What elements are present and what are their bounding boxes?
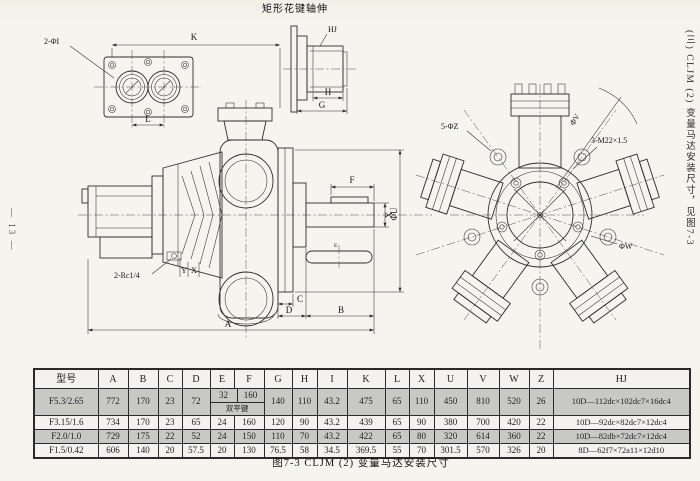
table-cell: 10D—82db×72dc7×12dc4 xyxy=(553,430,690,444)
model-cell: F2.0/1.0 xyxy=(34,430,98,444)
dim-table-body: F5.3/2.65772170237232160双平键14011043.2475… xyxy=(34,389,690,459)
table-cell: 52 xyxy=(182,430,210,444)
table-header-cell: B xyxy=(128,369,158,389)
table-cell: 772 xyxy=(98,389,128,416)
table-cell: 65 xyxy=(182,416,210,430)
dim-label-C: C xyxy=(297,294,303,304)
table-cell: 110 xyxy=(292,389,317,416)
dim-label-X-drain: X xyxy=(191,266,197,275)
dim-label-phiW: ΦW xyxy=(619,242,633,251)
table-cell: 700 xyxy=(467,416,499,430)
table-cell: 10D—112dc×102dc7×16dc4 xyxy=(553,389,690,416)
model-cell: F3.15/1.6 xyxy=(34,416,98,430)
table-header-cell: F xyxy=(234,369,264,389)
table-cell: 175 xyxy=(128,430,158,444)
thread-ports-callout: 3-M22×1.5 xyxy=(591,136,627,145)
table-cell: 614 xyxy=(467,430,499,444)
table-header-cell: D xyxy=(182,369,210,389)
table-cell: 22 xyxy=(529,430,553,444)
dim-label-E: E xyxy=(334,243,338,249)
table-cell: 90 xyxy=(409,416,434,430)
dim-label-G: G xyxy=(319,100,326,110)
table-cell: 110 xyxy=(409,389,434,416)
dim-label-H: H xyxy=(325,87,332,97)
table-header-cell: H xyxy=(292,369,317,389)
cylinder-lower-left xyxy=(447,235,536,328)
table-cell: 43.2 xyxy=(317,389,347,416)
table-header-cell: A xyxy=(98,369,128,389)
key-spec-cell: 32160双平键 xyxy=(210,389,264,416)
table-cell: 10D—92dc×82dc7×12dc4 xyxy=(553,416,690,430)
table-cell: 729 xyxy=(98,430,128,444)
table-header-cell: Z xyxy=(529,369,553,389)
table-header-cell: G xyxy=(264,369,292,389)
table-header-cell: X xyxy=(409,369,434,389)
table-cell: 150 xyxy=(234,430,264,444)
table-row: F3.15/1.67341702365241601209043.24396590… xyxy=(34,416,690,430)
table-cell: 70 xyxy=(292,430,317,444)
table-cell: 170 xyxy=(128,416,158,430)
dim-label-B: B xyxy=(338,305,344,315)
five-holes-callout: 5-ΦZ xyxy=(441,122,459,131)
dim-label-D: D xyxy=(286,305,293,315)
table-cell: 24 xyxy=(210,430,234,444)
figure-caption: 图7-3 CLJM (2) 变量马达安装尺寸 xyxy=(33,455,689,470)
table-cell: 72 xyxy=(182,389,210,416)
motor-side-view: E 2-Rc1/4 Y X F X ΦU xyxy=(78,100,432,340)
ports-callout: 2-ΦI xyxy=(44,37,60,46)
table-header-cell: L xyxy=(385,369,409,389)
table-header-cell: W xyxy=(499,369,529,389)
dim-label-K: K xyxy=(191,32,198,42)
table-header-cell: E xyxy=(210,369,234,389)
table-header-cell: HJ xyxy=(553,369,690,389)
table-cell: 24 xyxy=(210,416,234,430)
dim-label-A: A xyxy=(225,319,232,329)
engineering-drawing: L 2-ΦI K 矩形花键轴伸 HJ H xyxy=(0,0,700,364)
table-cell: 475 xyxy=(347,389,385,416)
table-header-cell: V xyxy=(467,369,499,389)
table-cell: 320 xyxy=(434,430,467,444)
table-header-cell: C xyxy=(158,369,182,389)
dim-label-Y: Y xyxy=(181,266,187,275)
dim-label-F: F xyxy=(349,175,354,185)
dim-table-header-row: 型号ABCDEFGHIKLXUVWZHJ xyxy=(34,369,690,389)
table-cell: 43.2 xyxy=(317,430,347,444)
table-cell: 43.2 xyxy=(317,416,347,430)
table-header-cell: I xyxy=(317,369,347,389)
table-cell: 22 xyxy=(529,416,553,430)
drain-callout: 2-Rc1/4 xyxy=(114,271,140,280)
table-cell: 90 xyxy=(292,416,317,430)
table-cell: 420 xyxy=(499,416,529,430)
table-cell: 80 xyxy=(409,430,434,444)
dim-label-L: L xyxy=(145,114,151,124)
spline-view-title: 矩形花键轴伸 xyxy=(262,2,328,15)
table-cell: 65 xyxy=(385,389,409,416)
table-cell: 23 xyxy=(158,389,182,416)
table-cell: 26 xyxy=(529,389,553,416)
table-cell: 360 xyxy=(499,430,529,444)
scanned-catalog-page: — 13 — (三) CLJM (2) 变量马达安装尺寸，见图7-3 xyxy=(0,0,700,481)
table-row: F2.0/1.07291752252241501107043.242265803… xyxy=(34,430,690,444)
table-cell: 170 xyxy=(128,389,158,416)
dim-label-HJ: HJ xyxy=(328,25,337,34)
table-cell: 120 xyxy=(264,416,292,430)
motor-front-view: 5-ΦZ 3-M22×1.5 ΦV ΦW xyxy=(416,84,664,350)
table-cell: 422 xyxy=(347,430,385,444)
table-cell: 520 xyxy=(499,389,529,416)
dimension-table: 型号ABCDEFGHIKLXUVWZHJ F5.3/2.657721702372… xyxy=(33,368,691,459)
table-cell: 734 xyxy=(98,416,128,430)
table-cell: 140 xyxy=(264,389,292,416)
dim-label-phiU: ΦU xyxy=(389,207,399,221)
port-flange-top-view: L 2-ΦI K xyxy=(44,32,280,130)
table-cell: 23 xyxy=(158,416,182,430)
table-header-cell: K xyxy=(347,369,385,389)
table-cell: 65 xyxy=(385,430,409,444)
table-cell: 110 xyxy=(264,430,292,444)
table-cell: 380 xyxy=(434,416,467,430)
spline-shaft-view: 矩形花键轴伸 HJ H G xyxy=(262,2,357,114)
dim-label-phiV: ΦV xyxy=(568,112,582,127)
table-cell: 810 xyxy=(467,389,499,416)
table-cell: 450 xyxy=(434,389,467,416)
model-cell: F5.3/2.65 xyxy=(34,389,98,416)
table-cell: 22 xyxy=(158,430,182,444)
table-row: F5.3/2.65772170237232160双平键14011043.2475… xyxy=(34,389,690,416)
table-header-cell: U xyxy=(434,369,467,389)
table-cell: 65 xyxy=(385,416,409,430)
table-cell: 160 xyxy=(234,416,264,430)
table-header-cell: 型号 xyxy=(34,369,98,389)
table-cell: 439 xyxy=(347,416,385,430)
